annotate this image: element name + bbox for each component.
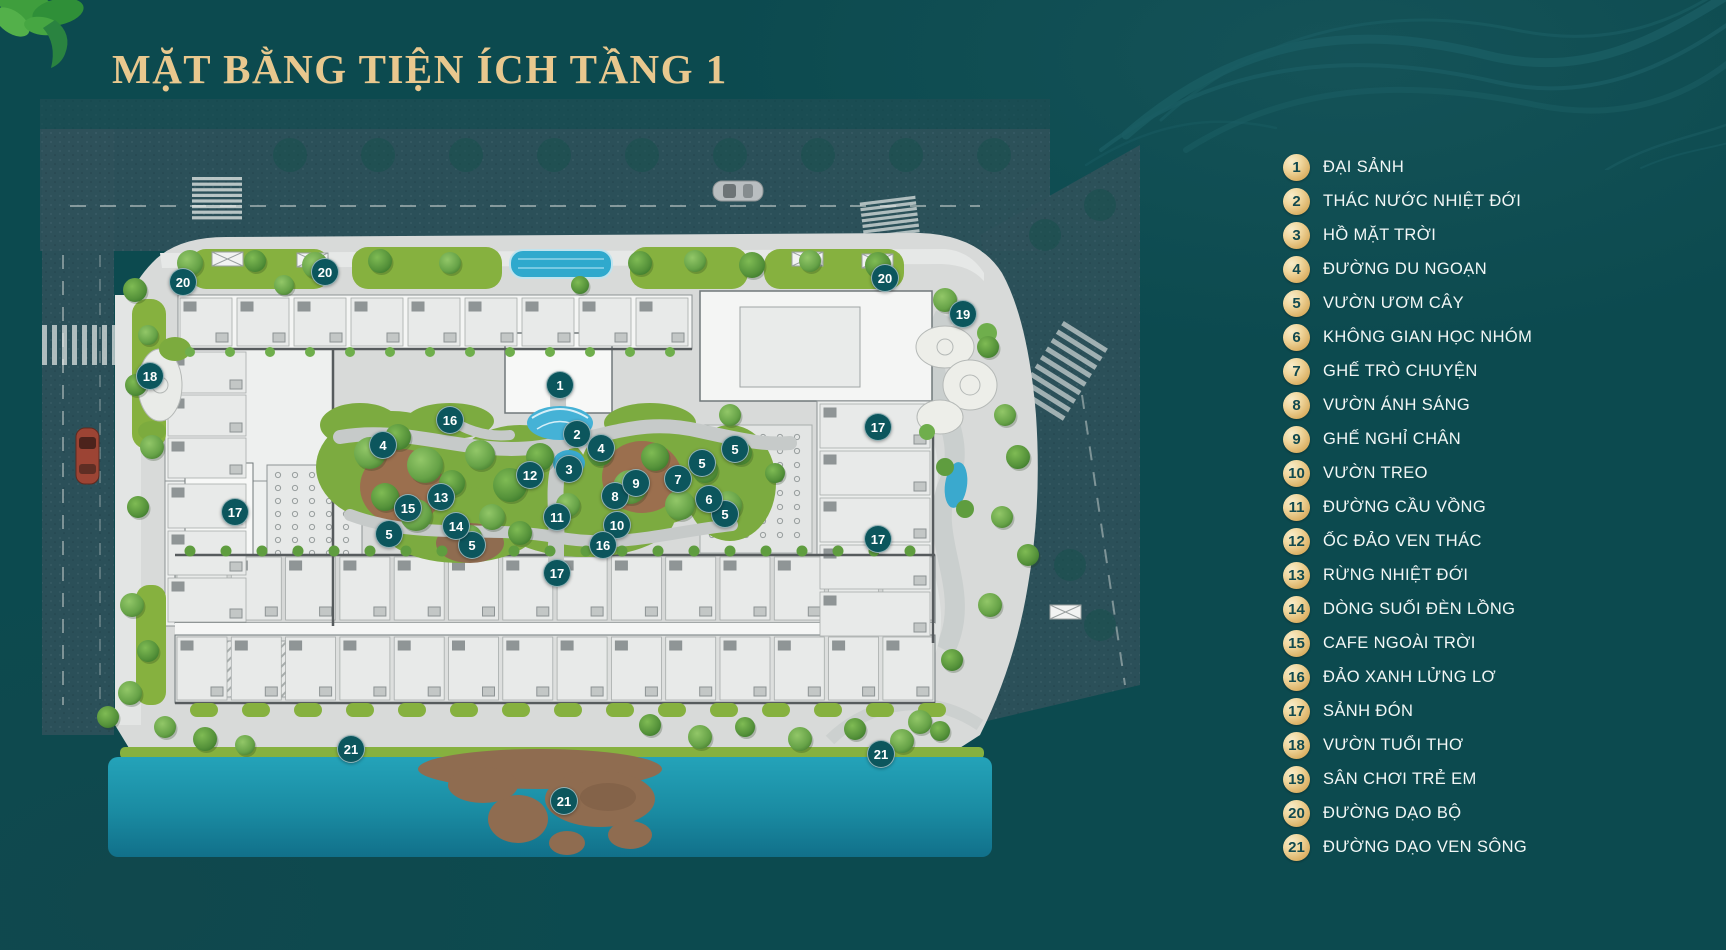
legend-badge: 2 xyxy=(1283,188,1310,215)
legend-label: THÁC NƯỚC NHIỆT ĐỚI xyxy=(1323,192,1521,211)
plan-marker-16: 16 xyxy=(436,406,464,434)
legend-badge: 8 xyxy=(1283,392,1310,419)
legend-label: ỐC ĐẢO VEN THÁC xyxy=(1323,532,1482,551)
legend-label: SẢNH ĐÓN xyxy=(1323,702,1413,721)
plan-marker-6: 6 xyxy=(695,485,723,513)
plan-marker-5: 5 xyxy=(721,435,749,463)
plan-marker-11: 11 xyxy=(543,503,571,531)
legend-label: SÂN CHƠI TRẺ EM xyxy=(1323,770,1477,789)
legend-label: VƯỜN ƯƠM CÂY xyxy=(1323,294,1464,313)
legend-badge: 4 xyxy=(1283,256,1310,283)
legend-badge: 12 xyxy=(1283,528,1310,555)
legend-item-14: 14DÒNG SUỐI ĐÈN LỒNG xyxy=(1283,592,1532,626)
plan-marker-14: 14 xyxy=(442,512,470,540)
legend-badge: 15 xyxy=(1283,630,1310,657)
lap-pool xyxy=(510,250,612,278)
legend-item-12: 12ỐC ĐẢO VEN THÁC xyxy=(1283,524,1532,558)
legend-label: ĐƯỜNG CẦU VỒNG xyxy=(1323,498,1486,517)
legend-item-21: 21ĐƯỜNG DẠO VEN SÔNG xyxy=(1283,830,1532,864)
legend-badge: 9 xyxy=(1283,426,1310,453)
legend-badge: 20 xyxy=(1283,800,1310,827)
legend-label: CAFE NGOÀI TRỜI xyxy=(1323,634,1476,653)
legend-item-4: 4ĐƯỜNG DU NGOẠN xyxy=(1283,252,1532,286)
legend-label: ĐẠI SẢNH xyxy=(1323,158,1404,177)
plan-marker-19: 19 xyxy=(949,300,977,328)
legend-badge: 6 xyxy=(1283,324,1310,351)
plan-marker-9: 9 xyxy=(622,469,650,497)
legend-badge: 13 xyxy=(1283,562,1310,589)
legend-badge: 11 xyxy=(1283,494,1310,521)
legend-label: HỒ MẶT TRỜI xyxy=(1323,226,1436,245)
plan-marker-4: 4 xyxy=(587,434,615,462)
legend-item-1: 1ĐẠI SẢNH xyxy=(1283,150,1532,184)
legend-item-5: 5VƯỜN ƯƠM CÂY xyxy=(1283,286,1532,320)
legend-item-7: 7GHẾ TRÒ CHUYỆN xyxy=(1283,354,1532,388)
plan-marker-5: 5 xyxy=(688,449,716,477)
plan-marker-17: 17 xyxy=(221,498,249,526)
legend-item-13: 13RỪNG NHIỆT ĐỚI xyxy=(1283,558,1532,592)
plan-marker-21: 21 xyxy=(867,740,895,768)
plan-marker-17: 17 xyxy=(543,559,571,587)
legend-badge: 7 xyxy=(1283,358,1310,385)
legend-item-16: 16ĐẢO XANH LỬNG LƠ xyxy=(1283,660,1532,694)
legend-item-2: 2THÁC NƯỚC NHIỆT ĐỚI xyxy=(1283,184,1532,218)
legend-label: ĐƯỜNG DẠO BỘ xyxy=(1323,804,1461,823)
legend-label: VƯỜN TUỔI THƠ xyxy=(1323,736,1464,755)
wave-lines-decoration xyxy=(1066,0,1726,170)
plan-marker-20: 20 xyxy=(311,258,339,286)
legend-label: RỪNG NHIỆT ĐỚI xyxy=(1323,566,1468,585)
plan-marker-13: 13 xyxy=(427,483,455,511)
plan-marker-18: 18 xyxy=(136,362,164,390)
legend-badge: 19 xyxy=(1283,766,1310,793)
red-car xyxy=(76,428,99,484)
plan-marker-4: 4 xyxy=(369,431,397,459)
plan-marker-20: 20 xyxy=(871,264,899,292)
legend-item-15: 15CAFE NGOÀI TRỜI xyxy=(1283,626,1532,660)
plan-marker-16: 16 xyxy=(589,531,617,559)
legend-label: GHẾ NGHỈ CHÂN xyxy=(1323,430,1461,449)
plan-marker-21: 21 xyxy=(550,787,578,815)
legend: 1ĐẠI SẢNH2THÁC NƯỚC NHIỆT ĐỚI3HỒ MẶT TRỜ… xyxy=(1283,150,1532,864)
legend-item-18: 18VƯỜN TUỔI THƠ xyxy=(1283,728,1532,762)
legend-badge: 21 xyxy=(1283,834,1310,861)
legend-item-20: 20ĐƯỜNG DẠO BỘ xyxy=(1283,796,1532,830)
legend-label: KHÔNG GIAN HỌC NHÓM xyxy=(1323,328,1532,347)
legend-label: GHẾ TRÒ CHUYỆN xyxy=(1323,362,1478,381)
plan-marker-17: 17 xyxy=(864,413,892,441)
legend-label: ĐẢO XANH LỬNG LƠ xyxy=(1323,668,1496,687)
legend-label: VƯỜN TREO xyxy=(1323,464,1428,483)
legend-item-11: 11ĐƯỜNG CẦU VỒNG xyxy=(1283,490,1532,524)
legend-badge: 14 xyxy=(1283,596,1310,623)
legend-item-8: 8VƯỜN ÁNH SÁNG xyxy=(1283,388,1532,422)
gray-car xyxy=(713,181,763,201)
legend-badge: 17 xyxy=(1283,698,1310,725)
legend-item-3: 3HỒ MẶT TRỜI xyxy=(1283,218,1532,252)
site-plan: 1234455555678910111213141516161717171718… xyxy=(40,85,1140,870)
legend-badge: 3 xyxy=(1283,222,1310,249)
legend-badge: 16 xyxy=(1283,664,1310,691)
legend-badge: 10 xyxy=(1283,460,1310,487)
plan-marker-3: 3 xyxy=(555,455,583,483)
legend-label: VƯỜN ÁNH SÁNG xyxy=(1323,396,1470,415)
plan-marker-15: 15 xyxy=(394,494,422,522)
plan-marker-7: 7 xyxy=(664,465,692,493)
plan-marker-17: 17 xyxy=(864,525,892,553)
legend-label: ĐƯỜNG DẠO VEN SÔNG xyxy=(1323,838,1527,857)
plan-marker-1: 1 xyxy=(546,371,574,399)
amenity-map-page: { "page": { "title": "MẶT BẰNG TIỆN ÍCH … xyxy=(0,0,1726,950)
legend-badge: 5 xyxy=(1283,290,1310,317)
legend-item-19: 19SÂN CHƠI TRẺ EM xyxy=(1283,762,1532,796)
legend-item-9: 9GHẾ NGHỈ CHÂN xyxy=(1283,422,1532,456)
plan-marker-21: 21 xyxy=(337,735,365,763)
legend-label: DÒNG SUỐI ĐÈN LỒNG xyxy=(1323,600,1515,619)
legend-item-17: 17SẢNH ĐÓN xyxy=(1283,694,1532,728)
plan-marker-20: 20 xyxy=(169,268,197,296)
plan-marker-5: 5 xyxy=(375,520,403,548)
legend-label: ĐƯỜNG DU NGOẠN xyxy=(1323,260,1487,279)
plan-marker-12: 12 xyxy=(516,461,544,489)
legend-item-10: 10VƯỜN TREO xyxy=(1283,456,1532,490)
legend-item-6: 6KHÔNG GIAN HỌC NHÓM xyxy=(1283,320,1532,354)
site-plan-drawing xyxy=(40,85,1140,870)
legend-badge: 18 xyxy=(1283,732,1310,759)
legend-badge: 1 xyxy=(1283,154,1310,181)
